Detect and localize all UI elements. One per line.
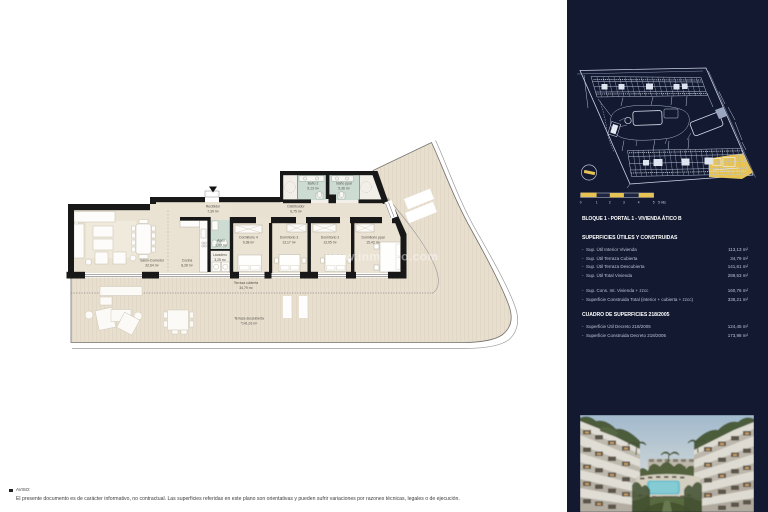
svg-text:5,13 m²: 5,13 m² [307, 187, 319, 191]
svg-text:9,38 m²: 9,38 m² [243, 241, 255, 245]
svg-text:5 mts: 5 mts [658, 201, 666, 205]
svg-text:3,25 m²: 3,25 m² [214, 258, 226, 262]
svg-text:4: 4 [638, 201, 640, 205]
svg-text:15,42 m²: 15,42 m² [366, 241, 380, 245]
svg-text:Lavadero: Lavadero [213, 253, 227, 257]
svg-text:0: 0 [580, 201, 582, 205]
svg-text:5: 5 [653, 201, 655, 205]
svg-text:Dormitorio 3: Dormitorio 3 [280, 236, 299, 240]
svg-text:Dormitorio ppal: Dormitorio ppal [362, 236, 385, 240]
svg-text:Distribuidor: Distribuidor [287, 205, 305, 209]
svg-text:Cocina: Cocina [182, 259, 193, 263]
svg-text:*141,01 m²: *141,01 m² [241, 322, 258, 326]
svg-text:2,07 m²: 2,07 m² [215, 244, 227, 248]
svg-text:1: 1 [596, 201, 598, 205]
svg-text:Salón-Comedor: Salón-Comedor [140, 259, 165, 263]
svg-text:2: 2 [609, 201, 611, 205]
svg-text:13,05 m²: 13,05 m² [323, 241, 337, 245]
svg-text:Baño ppal: Baño ppal [336, 182, 352, 186]
svg-text:3: 3 [623, 201, 625, 205]
svg-text:7,39 m²: 7,39 m² [207, 210, 219, 214]
svg-text:6,75 m²: 6,75 m² [290, 210, 302, 214]
svg-text:Dormitorio 2: Dormitorio 2 [321, 236, 340, 240]
svg-text:Dormitorio 4: Dormitorio 4 [239, 236, 258, 240]
svg-text:Aseo: Aseo [217, 239, 225, 243]
svg-text:Terraza descubierta: Terraza descubierta [234, 317, 264, 321]
svg-text:34,79 m²: 34,79 m² [239, 286, 253, 290]
svg-text:13,17 m²: 13,17 m² [282, 241, 296, 245]
svg-text:32,64 m²: 32,64 m² [145, 264, 159, 268]
svg-text:Terraza cubierta: Terraza cubierta [234, 281, 258, 285]
svg-text:Recibidor: Recibidor [206, 205, 221, 209]
svg-text:www.inmopro.com: www.inmopro.com [325, 250, 439, 264]
svg-text:5,36 m²: 5,36 m² [338, 187, 350, 191]
svg-text:Baño 2: Baño 2 [308, 182, 319, 186]
svg-text:8,28 m²: 8,28 m² [181, 264, 193, 268]
